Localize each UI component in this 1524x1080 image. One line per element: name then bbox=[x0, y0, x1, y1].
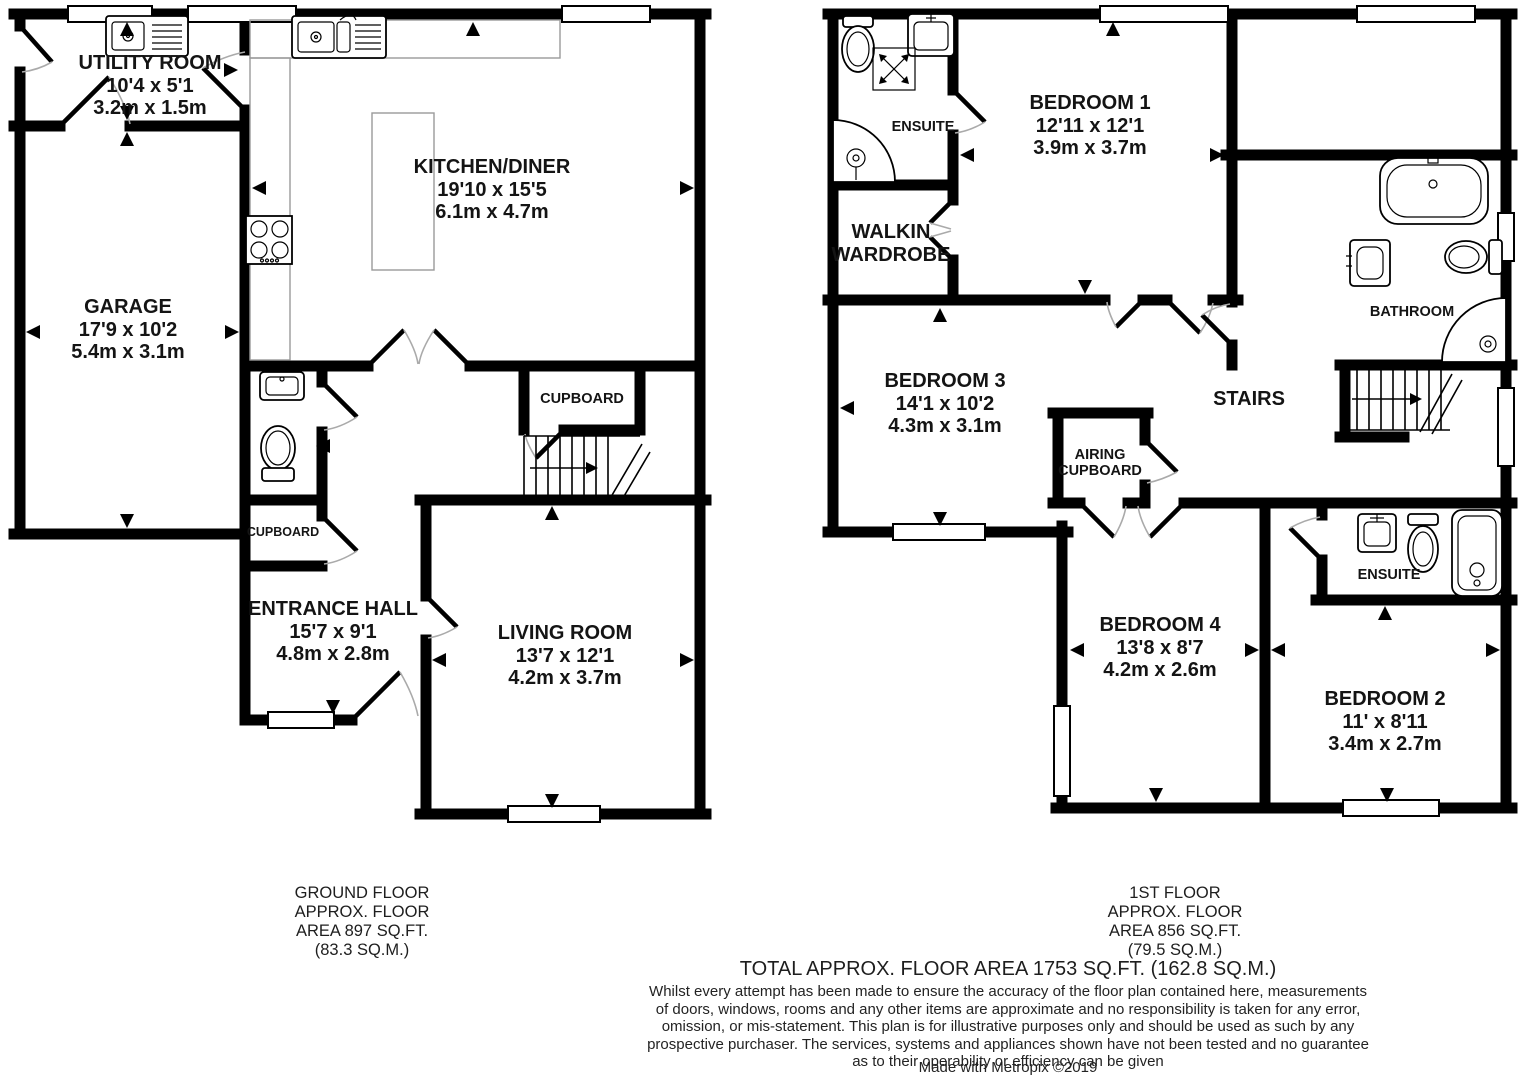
wc-toilet bbox=[261, 426, 295, 481]
room-name: BEDROOM 1 bbox=[1029, 92, 1150, 115]
hob bbox=[246, 216, 292, 264]
ensuite2-toilet bbox=[1408, 514, 1438, 572]
room-name: GARAGE bbox=[71, 296, 184, 319]
room-dims-m: 5.4m x 3.1m bbox=[71, 341, 184, 364]
floorplan-drawing bbox=[0, 0, 1524, 1080]
disclaimer-text: Whilst every attempt has been made to en… bbox=[647, 983, 1369, 1071]
ground-floor-walls bbox=[14, 14, 706, 814]
room-name: LIVING ROOM bbox=[498, 622, 632, 645]
room-name: BEDROOM 3 bbox=[884, 370, 1005, 393]
room-name: BEDROOM 4 bbox=[1099, 614, 1220, 637]
room-label-cupboard-lower: CUPBOARD bbox=[247, 525, 319, 539]
room-label-walkin-wardrobe: WALKIN WARDROBE bbox=[801, 221, 981, 266]
bathroom-bath bbox=[1380, 154, 1488, 224]
caption-line: (83.3 SQ.M.) bbox=[295, 941, 430, 960]
room-label-bedroom-3: BEDROOM 3 14'1 x 10'2 4.3m x 3.1m bbox=[884, 370, 1005, 438]
room-label-stairs: STAIRS bbox=[1213, 388, 1285, 411]
ground-floor-arrows bbox=[26, 22, 694, 808]
room-name: ENTRANCE HALL bbox=[248, 598, 418, 621]
disclaimer-line: prospective purchaser. The services, sys… bbox=[647, 1036, 1369, 1054]
ensuite1-toilet bbox=[842, 16, 874, 72]
room-dims-ft: 17'9 x 10'2 bbox=[71, 319, 184, 342]
caption-line: GROUND FLOOR bbox=[295, 884, 430, 903]
room-label-living-room: LIVING ROOM 13'7 x 12'1 4.2m x 3.7m bbox=[498, 622, 632, 690]
room-label-ensuite-1: ENSUITE bbox=[892, 119, 955, 135]
caption-line: 1ST FLOOR bbox=[1108, 884, 1243, 903]
total-floor-area: TOTAL APPROX. FLOOR AREA 1753 SQ.FT. (16… bbox=[740, 958, 1276, 981]
caption-line: AREA 897 SQ.FT. bbox=[295, 922, 430, 941]
room-label-kitchen-diner: KITCHEN/DINER 19'10 x 15'5 6.1m x 4.7m bbox=[414, 156, 571, 224]
room-label-airing-cupboard: AIRING CUPBOARD bbox=[1045, 447, 1155, 479]
room-label-garage: GARAGE 17'9 x 10'2 5.4m x 3.1m bbox=[71, 296, 184, 364]
ground-floor-stairs bbox=[524, 436, 650, 503]
room-dims-ft: 10'4 x 5'1 bbox=[79, 75, 222, 98]
room-label-bedroom-1: BEDROOM 1 12'11 x 12'1 3.9m x 3.7m bbox=[1029, 92, 1150, 160]
disclaimer-line: Whilst every attempt has been made to en… bbox=[647, 983, 1369, 1001]
room-name: KITCHEN/DINER bbox=[414, 156, 571, 179]
disclaimer-line: omission, or mis-statement. This plan is… bbox=[647, 1018, 1369, 1036]
room-dims-m: 4.2m x 3.7m bbox=[498, 667, 632, 690]
room-label-entrance-hall: ENTRANCE HALL 15'7 x 9'1 4.8m x 2.8m bbox=[248, 598, 418, 666]
first-floor-caption: 1ST FLOOR APPROX. FLOOR AREA 856 SQ.FT. … bbox=[1108, 884, 1243, 960]
room-dims-ft: 12'11 x 12'1 bbox=[1029, 115, 1150, 138]
ensuite1-shower-symbol bbox=[873, 48, 915, 90]
room-name: BEDROOM 2 bbox=[1324, 688, 1445, 711]
room-dims-m: 4.2m x 2.6m bbox=[1099, 659, 1220, 682]
bathroom-sink bbox=[1346, 240, 1390, 286]
ground-floor-caption: GROUND FLOOR APPROX. FLOOR AREA 897 SQ.F… bbox=[295, 884, 430, 960]
floorplan-canvas: UTILITY ROOM 10'4 x 5'1 3.2m x 1.5m KITC… bbox=[0, 0, 1524, 1080]
ensuite2-sink bbox=[1358, 514, 1396, 552]
room-dims-ft: 15'7 x 9'1 bbox=[248, 621, 418, 644]
bathroom-toilet bbox=[1445, 240, 1502, 274]
caption-line: APPROX. FLOOR bbox=[295, 903, 430, 922]
room-label-bathroom: BATHROOM bbox=[1370, 304, 1454, 320]
ensuite1-corner-shower bbox=[833, 120, 895, 182]
room-dims-ft: 13'8 x 8'7 bbox=[1099, 637, 1220, 660]
room-dims-ft: 13'7 x 12'1 bbox=[498, 645, 632, 668]
room-dims-m: 4.3m x 3.1m bbox=[884, 415, 1005, 438]
wc-sink bbox=[260, 368, 304, 400]
ensuite2-bath bbox=[1452, 510, 1502, 596]
room-dims-m: 4.8m x 2.8m bbox=[248, 643, 418, 666]
room-dims-ft: 19'10 x 15'5 bbox=[414, 179, 571, 202]
room-label-bedroom-4: BEDROOM 4 13'8 x 8'7 4.2m x 2.6m bbox=[1099, 614, 1220, 682]
disclaimer-line: of doors, windows, rooms and any other i… bbox=[647, 1001, 1369, 1019]
room-dims-m: 3.2m x 1.5m bbox=[79, 97, 222, 120]
room-label-ensuite-2: ENSUITE bbox=[1358, 567, 1421, 583]
credit-text: Made with Metropix ©2019 bbox=[919, 1059, 1098, 1076]
room-label-bedroom-2: BEDROOM 2 11' x 8'11 3.4m x 2.7m bbox=[1324, 688, 1445, 756]
room-dims-m: 6.1m x 4.7m bbox=[414, 201, 571, 224]
caption-line: APPROX. FLOOR bbox=[1108, 903, 1243, 922]
room-dims-m: 3.9m x 3.7m bbox=[1029, 137, 1150, 160]
kitchen-sink bbox=[292, 15, 386, 58]
room-label-cupboard-upper: CUPBOARD bbox=[540, 391, 624, 407]
room-dims-ft: 11' x 8'11 bbox=[1324, 711, 1445, 734]
room-dims-m: 3.4m x 2.7m bbox=[1324, 733, 1445, 756]
room-label-utility: UTILITY ROOM 10'4 x 5'1 3.2m x 1.5m bbox=[79, 52, 222, 120]
room-name: UTILITY ROOM bbox=[79, 52, 222, 75]
room-dims-ft: 14'1 x 10'2 bbox=[884, 393, 1005, 416]
caption-line: AREA 856 SQ.FT. bbox=[1108, 922, 1243, 941]
utility-sink bbox=[106, 16, 188, 56]
first-floor-stairs bbox=[1345, 370, 1462, 434]
